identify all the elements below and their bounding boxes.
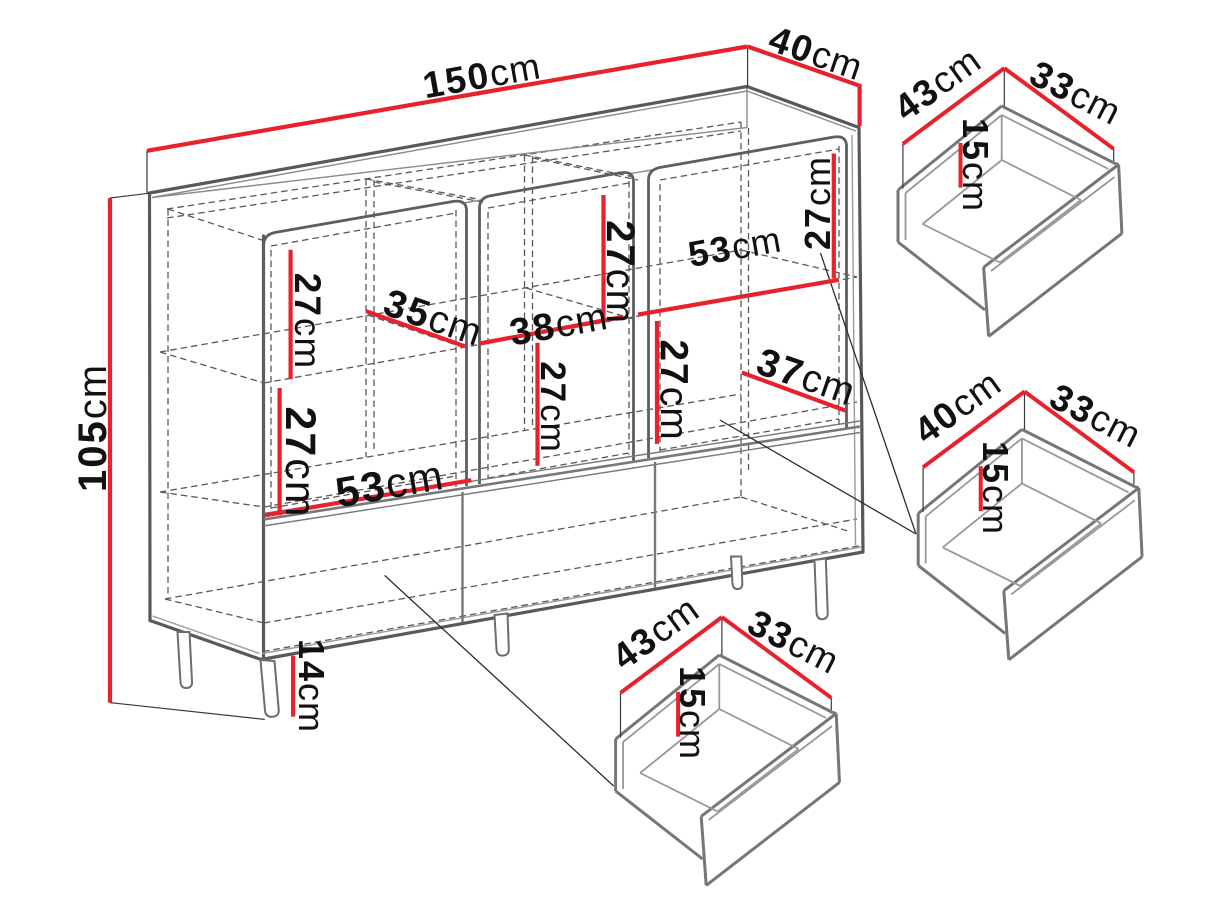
svg-text:27cm: 27cm (652, 339, 695, 440)
svg-text:150cm: 150cm (420, 45, 544, 106)
svg-text:43cm: 43cm (887, 39, 989, 129)
svg-text:53cm: 53cm (685, 218, 785, 275)
svg-text:27cm: 27cm (276, 406, 324, 517)
svg-text:27cm: 27cm (287, 273, 328, 369)
svg-text:38cm: 38cm (507, 296, 612, 355)
svg-text:27cm: 27cm (533, 361, 572, 453)
svg-text:105cm: 105cm (71, 364, 115, 492)
svg-text:15cm: 15cm (672, 666, 713, 760)
svg-text:53cm: 53cm (332, 451, 447, 516)
svg-text:37cm: 37cm (751, 340, 861, 414)
svg-text:40cm: 40cm (764, 18, 869, 88)
svg-text:15cm: 15cm (955, 118, 996, 212)
svg-text:40cm: 40cm (907, 362, 1009, 452)
svg-text:35cm: 35cm (378, 281, 488, 355)
svg-text:15cm: 15cm (975, 441, 1016, 535)
svg-text:27cm: 27cm (797, 156, 838, 250)
svg-text:27cm: 27cm (598, 220, 642, 324)
svg-text:14cm: 14cm (291, 639, 332, 733)
